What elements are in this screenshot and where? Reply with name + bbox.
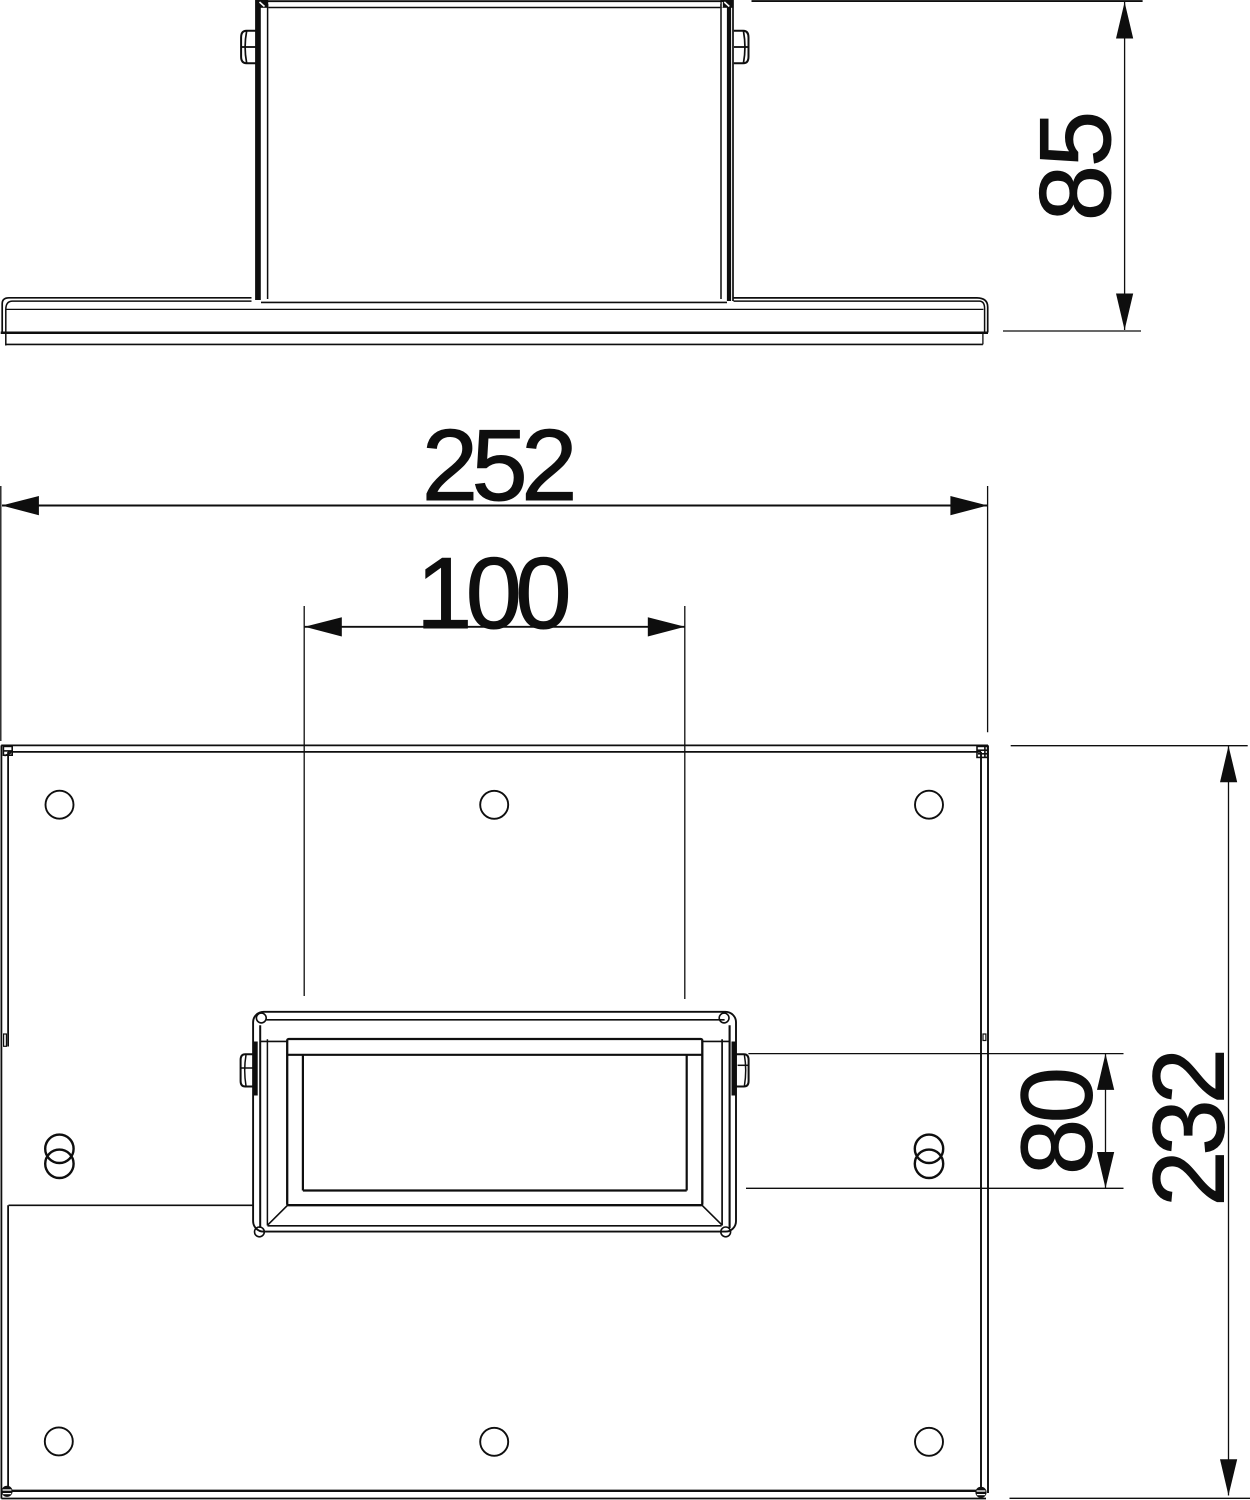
svg-text:232: 232 bbox=[1134, 1052, 1246, 1206]
svg-text:80: 80 bbox=[1002, 1070, 1114, 1175]
svg-text:100: 100 bbox=[416, 538, 568, 650]
svg-text:252: 252 bbox=[422, 410, 573, 522]
svg-text:85: 85 bbox=[1020, 113, 1132, 221]
